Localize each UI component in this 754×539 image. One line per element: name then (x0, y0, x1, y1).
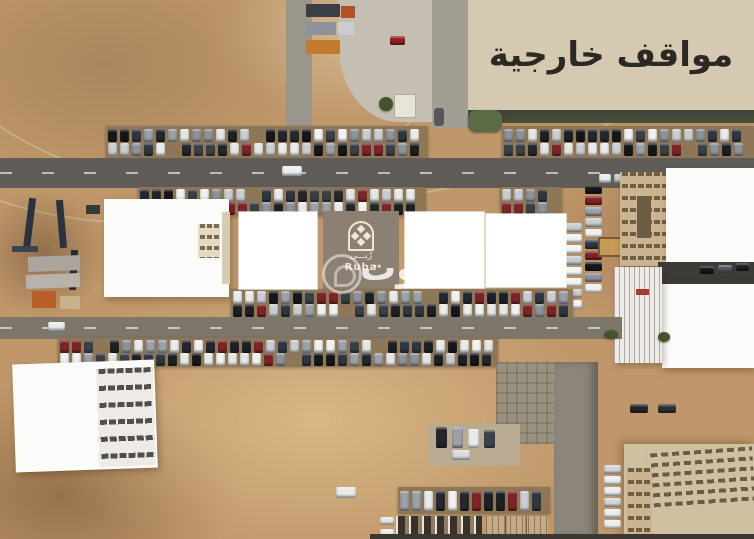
parked-car (658, 404, 676, 413)
shrub (658, 332, 670, 342)
building-window-strip (198, 224, 220, 258)
red-car (390, 36, 405, 45)
tree (379, 97, 393, 111)
bottom-road-edge (370, 534, 754, 539)
vertical-road-bottom (554, 362, 598, 539)
white-cars-column-bottom (602, 464, 623, 534)
building-window-facade (96, 367, 155, 467)
white-car-on-road (282, 166, 302, 176)
building-edge-beige (222, 212, 230, 284)
parking-row-third (231, 289, 573, 318)
parking-row-bottom (398, 487, 550, 514)
white-van (336, 487, 356, 498)
building-white-top-right (666, 168, 754, 265)
asphalt-road-second (0, 317, 622, 339)
container-orange (306, 40, 340, 54)
hedge-strip (468, 110, 754, 123)
parked-car (484, 430, 495, 448)
parked-car (700, 266, 714, 274)
parking-row-second-right (500, 187, 562, 216)
parked-car (630, 404, 648, 413)
building-white-right (662, 284, 754, 368)
ruba-arch-icon (348, 221, 374, 251)
container-gray (306, 22, 336, 35)
equipment (86, 205, 100, 214)
parked-car (436, 427, 447, 448)
container-white (338, 22, 354, 35)
shed-gray (28, 255, 80, 272)
banner-label: مواقف خارجية (489, 35, 733, 75)
parking-row-top-right (502, 126, 754, 159)
steel-beam (12, 246, 38, 252)
white-car-on-road (48, 322, 65, 331)
car-on-road (434, 108, 444, 126)
parked-car (736, 263, 749, 271)
parked-car (718, 265, 732, 273)
parking-row-top-left (106, 126, 428, 159)
building-window-facade (626, 468, 652, 539)
perforated-rooftop (646, 446, 754, 511)
vertical-road-top-left (286, 0, 312, 128)
building-core-shadow (637, 196, 651, 238)
truck-cab-orange (341, 6, 355, 18)
parked-car (452, 450, 470, 460)
title-banner: مواقف خارجية (468, 0, 754, 110)
grass-patch (468, 110, 502, 132)
redacted-building-1 (239, 212, 317, 289)
shed-gray (26, 273, 80, 289)
shrub (604, 330, 618, 339)
watermark-circle-icon (322, 254, 362, 294)
parked-car (468, 429, 479, 448)
parked-car (452, 427, 463, 448)
container-orange (32, 291, 56, 308)
redacted-building-2 (405, 212, 484, 288)
aerial-photo-parking: مواقف خارجية رُبـــى Ruba · · وت (0, 0, 754, 539)
guard-hut (394, 94, 416, 118)
parked-car (380, 517, 394, 525)
red-signage (636, 289, 649, 295)
crate (60, 296, 80, 309)
redacted-building-3 (486, 214, 566, 287)
container-dark (306, 4, 340, 17)
building-striped (614, 267, 662, 363)
kiosk-shed (598, 237, 622, 257)
